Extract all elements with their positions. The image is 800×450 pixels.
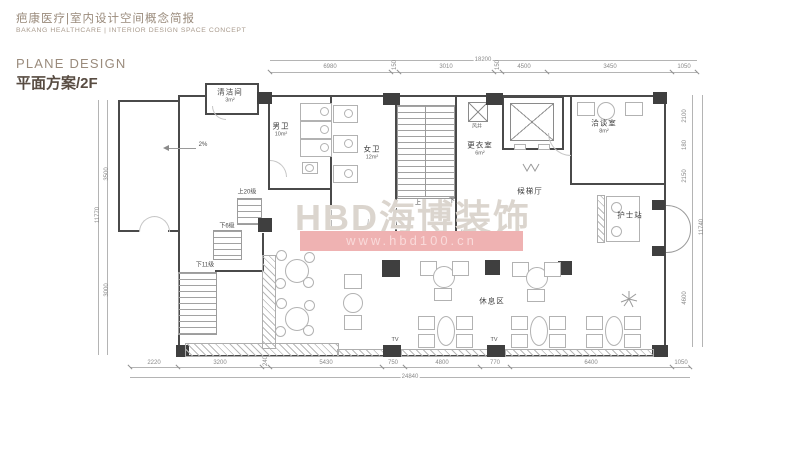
toilet <box>320 143 329 152</box>
stair-down11-label: 下11级 <box>196 260 214 269</box>
column <box>652 246 665 256</box>
stair-core <box>397 105 455 199</box>
stair-down6-label: 下6级 <box>219 221 234 230</box>
column <box>486 93 503 105</box>
room-area: 8m² <box>591 128 617 134</box>
dim-label: 180 <box>682 139 688 151</box>
stair-down6 <box>213 230 242 260</box>
low-cabinet <box>337 349 385 357</box>
dim-label: 6400 <box>583 360 598 366</box>
round-table <box>597 102 615 120</box>
dim-line-left-total <box>98 100 99 355</box>
watermark-url: www.hbd100.cn <box>300 231 523 251</box>
column <box>383 93 400 105</box>
room-name: 休息区 <box>479 297 505 306</box>
chair <box>303 277 314 288</box>
page-title: 疤康医疗|室内设计空间概念简报 <box>16 10 195 26</box>
dim-total-left: 11770 <box>95 206 101 224</box>
room-label-nurse: 护士站 <box>617 212 643 221</box>
room-name: 护士站 <box>617 211 643 220</box>
oval-table <box>437 316 455 346</box>
armchair <box>452 261 469 276</box>
armchair <box>544 262 561 277</box>
wall <box>570 183 666 185</box>
toilet <box>344 139 353 148</box>
dim-label: 6980 <box>322 64 337 70</box>
dim-label: 150 <box>495 59 501 71</box>
shelf <box>262 255 276 349</box>
toilet <box>320 107 329 116</box>
dim-label: 4600 <box>682 290 688 305</box>
dim-label: 3500 <box>104 166 110 181</box>
stair-down11 <box>178 272 217 335</box>
dim-label: 2150 <box>682 168 688 183</box>
room-name: 更衣室 <box>467 141 493 150</box>
room-name: 清洁间 <box>217 88 243 97</box>
oval-table <box>605 316 623 346</box>
room-area: 3m² <box>217 97 243 103</box>
wall <box>215 270 262 272</box>
room-label-rest: 休息区 <box>479 298 505 307</box>
tv-label: TV <box>490 337 497 343</box>
dim-label: 2220 <box>146 360 161 366</box>
armchair <box>456 334 473 348</box>
toilet <box>344 169 353 178</box>
wall <box>178 95 207 97</box>
sink-bowl <box>305 164 314 172</box>
stair-up20-label: 上20级 <box>238 187 257 196</box>
room-area: 6m² <box>467 150 493 156</box>
armchair <box>418 334 435 348</box>
room-label-male-wc: 男卫 10m² <box>273 123 290 138</box>
slope-label: 2% <box>199 142 208 148</box>
room-label-female-wc: 女卫 12m² <box>364 146 381 161</box>
armchair <box>344 315 362 330</box>
room-label-changing: 更衣室 6m² <box>467 142 493 157</box>
section-title-cn: 平面方案/2F <box>16 72 98 93</box>
air-shaft-label: 风井 <box>472 123 482 130</box>
armchair <box>624 334 641 348</box>
wall <box>118 100 180 102</box>
armchair <box>549 334 566 348</box>
dim-label: 1050 <box>676 64 691 70</box>
dim-label: 3200 <box>212 360 227 366</box>
wall <box>257 95 666 97</box>
column <box>652 345 668 357</box>
toilet <box>320 125 329 134</box>
armchair <box>586 334 603 348</box>
chair <box>611 226 622 237</box>
dim-label: 750 <box>387 360 399 366</box>
dim-label: 1050 <box>673 360 688 366</box>
room-label-meeting: 洽谈室 8m² <box>591 120 617 135</box>
bay-niche <box>666 205 691 253</box>
armchair <box>549 316 566 330</box>
door-arc <box>548 133 571 156</box>
chair <box>275 278 286 289</box>
lobby-ornament-icon <box>522 162 540 174</box>
chair <box>276 250 287 261</box>
floor-plan: 18200 6980 150 3010 150 4500 3450 1050 2… <box>100 50 720 410</box>
column <box>382 260 400 277</box>
dim-line-bottom-seg <box>130 367 690 368</box>
armchair <box>511 334 528 348</box>
elevator-door-jamb <box>538 144 550 150</box>
low-cabinet <box>401 349 489 357</box>
slope-arrow-line <box>168 148 196 149</box>
dim-label: 4800 <box>434 360 449 366</box>
wall <box>118 230 140 232</box>
dim-line-left-seg <box>107 100 108 355</box>
chair <box>276 298 287 309</box>
chair <box>304 252 315 263</box>
column <box>257 92 272 104</box>
stair-divider <box>425 105 426 197</box>
dim-label: 3450 <box>602 64 617 70</box>
dim-label: 770 <box>489 360 501 366</box>
column <box>258 218 272 232</box>
dim-total-top: 18200 <box>474 57 493 63</box>
chair <box>275 326 286 337</box>
chair <box>304 300 315 311</box>
room-name: 女卫 <box>364 145 381 154</box>
double-door-leaf <box>139 216 155 232</box>
nurse-counter <box>597 195 605 243</box>
room-name: 洽谈室 <box>591 119 617 128</box>
armchair <box>625 102 643 116</box>
dim-label: 3010 <box>438 64 453 70</box>
chair <box>303 325 314 336</box>
room-area: 12m² <box>364 154 381 160</box>
toilet <box>344 109 353 118</box>
armchair <box>624 316 641 330</box>
slide: 疤康医疗|室内设计空间概念简报 BAKANG HEALTHCARE | INTE… <box>0 0 800 450</box>
room-area: 10m² <box>273 131 290 137</box>
door-arc <box>212 106 226 120</box>
armchair <box>344 274 362 289</box>
armchair <box>511 316 528 330</box>
slope-arrow-head <box>163 145 169 151</box>
dim-label: 5430 <box>318 360 333 366</box>
air-shaft <box>468 102 488 122</box>
dim-total-bottom: 24840 <box>401 374 420 380</box>
column <box>652 200 665 210</box>
side-table <box>527 289 545 302</box>
low-cabinet <box>505 349 654 357</box>
column <box>485 260 500 275</box>
tv-unit <box>487 345 505 357</box>
oval-table <box>530 316 548 346</box>
armchair <box>418 316 435 330</box>
dim-total-right: 11740 <box>699 218 705 236</box>
plant-icon <box>620 290 638 308</box>
wall <box>118 100 120 232</box>
dim-label: 4500 <box>516 64 531 70</box>
dim-label: 3000 <box>104 282 110 297</box>
armchair <box>586 316 603 330</box>
room-label-cleaning: 清洁间 3m² <box>217 89 243 104</box>
room-name: 男卫 <box>273 122 290 131</box>
dim-label: 150 <box>392 59 398 71</box>
page-subtitle: BAKANG HEALTHCARE | INTERIOR DESIGN SPAC… <box>16 27 246 34</box>
dim-label: 2100 <box>682 108 688 123</box>
door-arc <box>270 160 287 177</box>
side-table <box>434 288 452 301</box>
dim-line-right-seg <box>692 95 693 347</box>
elevator-door-jamb <box>514 144 526 150</box>
tv-unit <box>383 345 401 357</box>
armchair <box>456 316 473 330</box>
dim-line-top-seg <box>270 72 697 73</box>
column <box>653 92 667 104</box>
double-door-leaf <box>154 216 170 232</box>
tv-label: TV <box>391 337 398 343</box>
armchair <box>577 102 595 116</box>
round-table <box>343 293 363 313</box>
